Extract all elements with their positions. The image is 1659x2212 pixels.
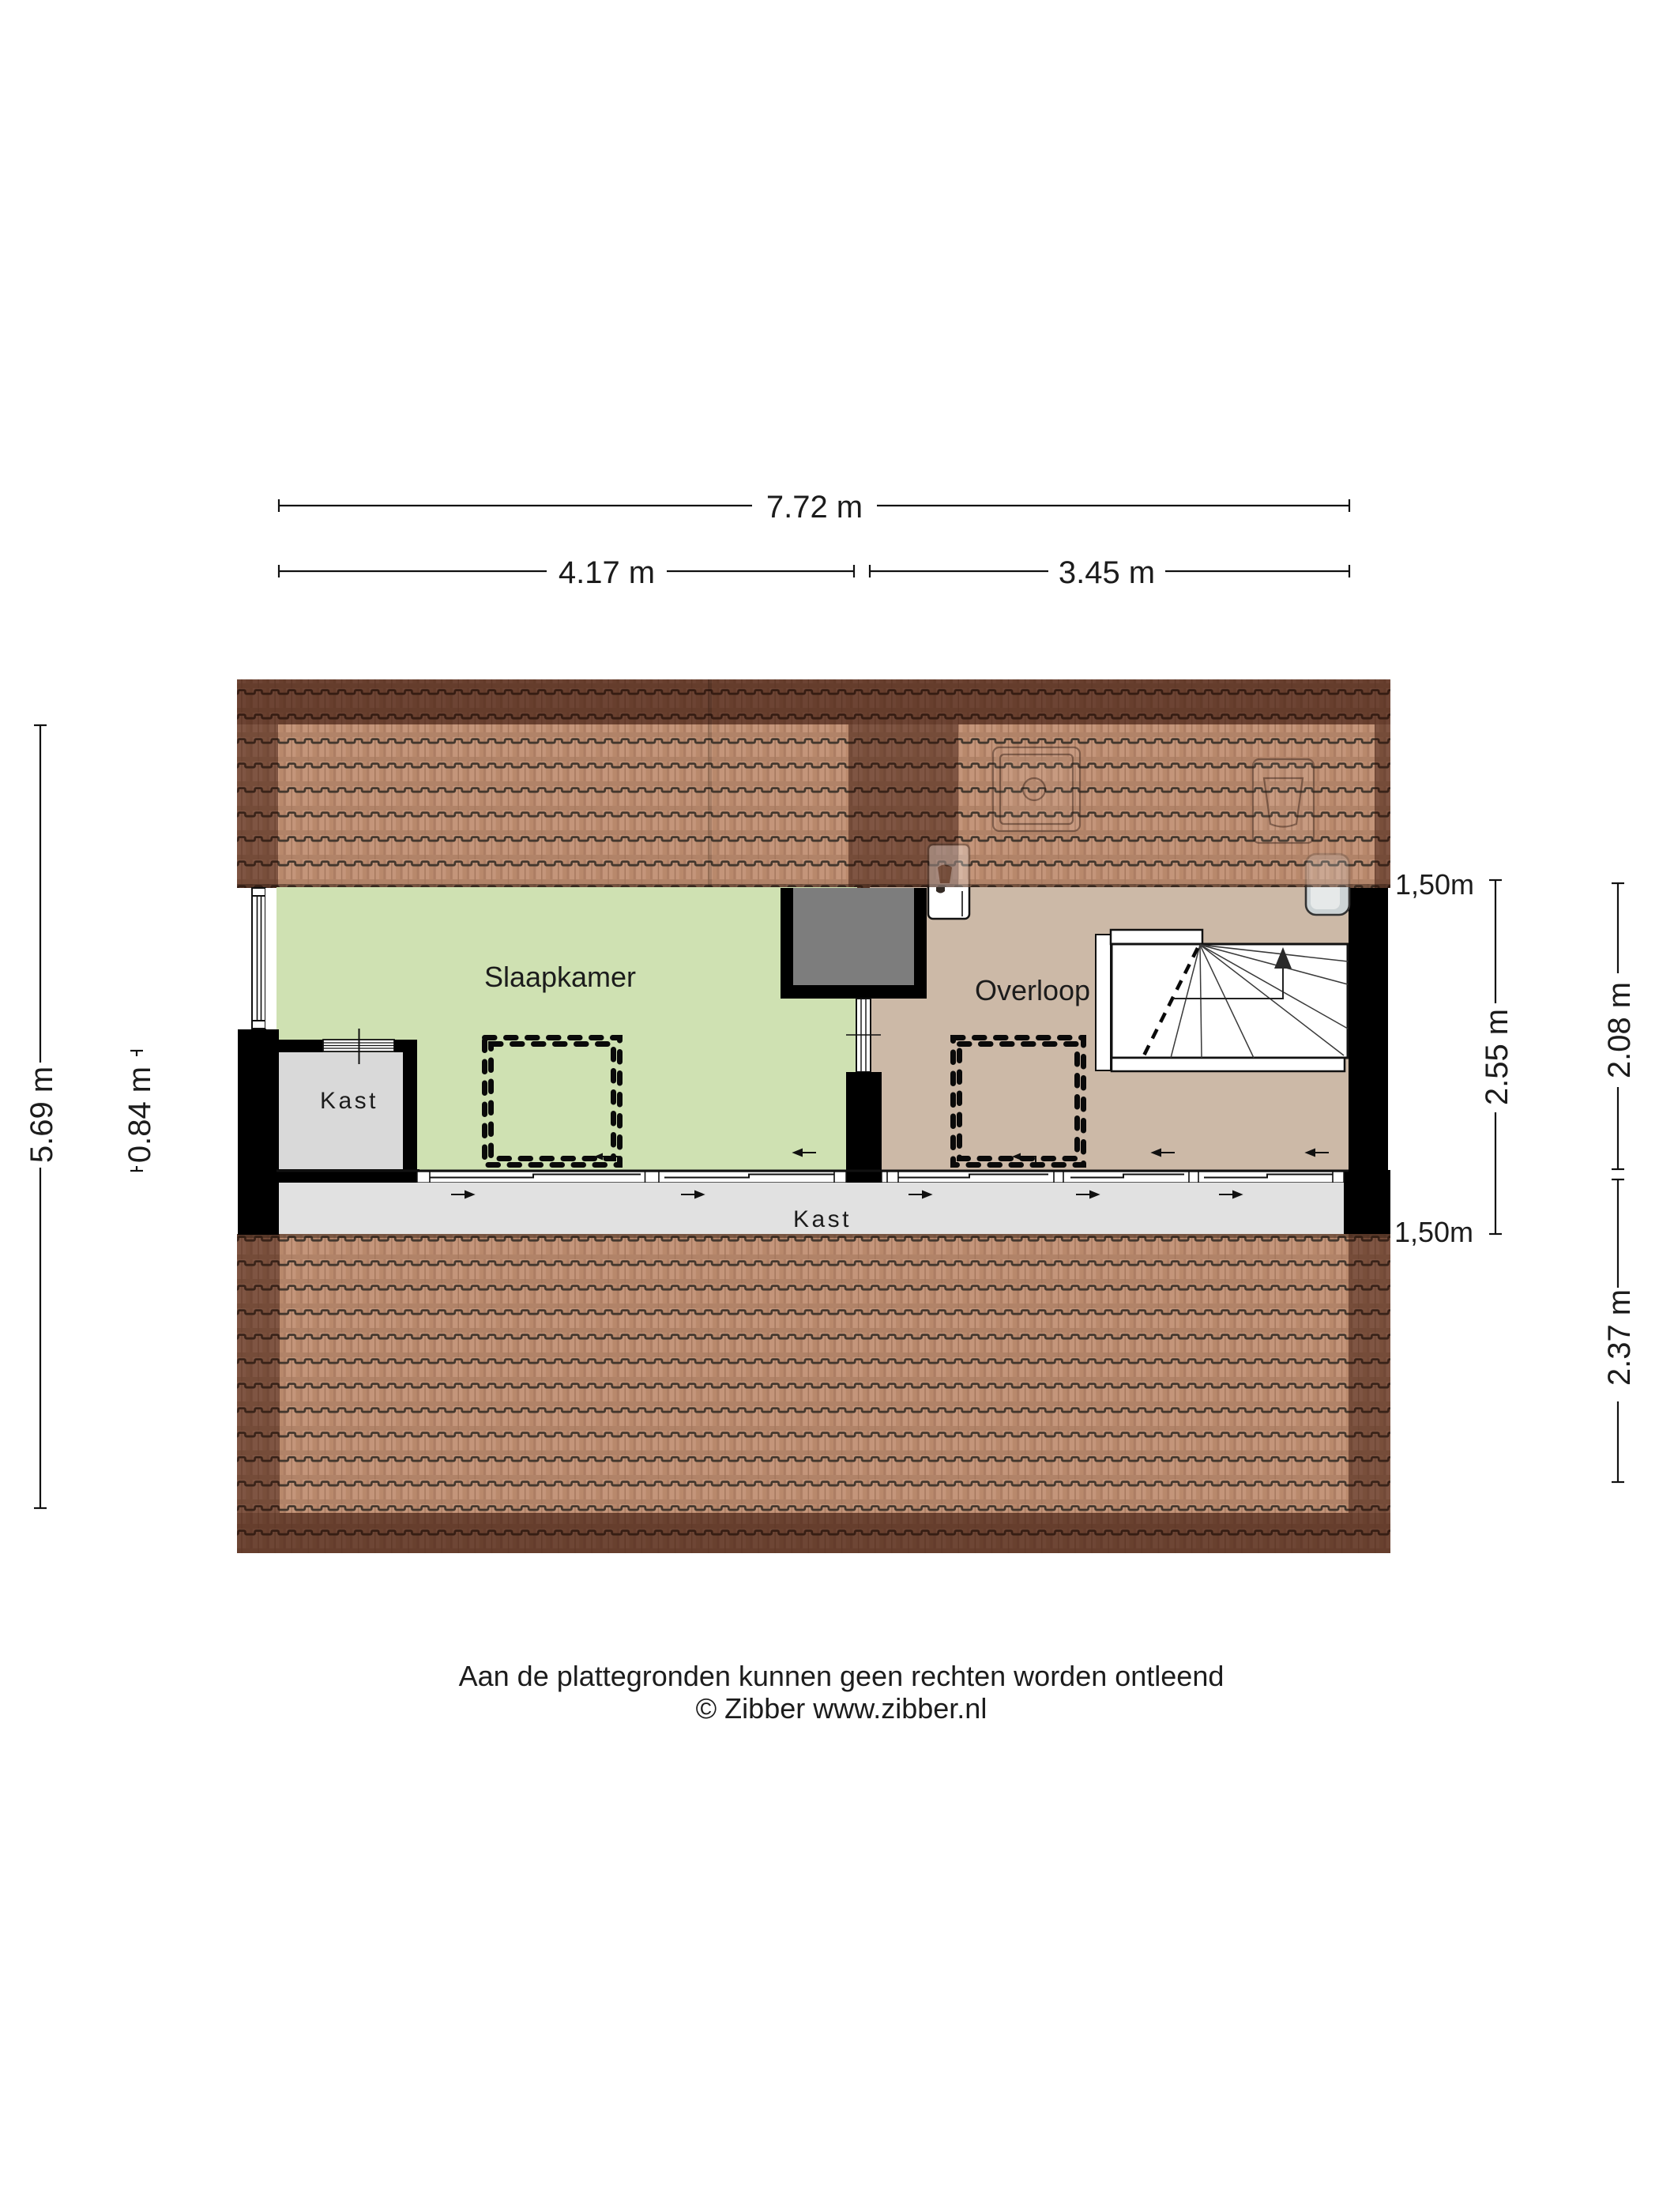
svg-text:© Zibber www.zibber.nl: © Zibber www.zibber.nl	[696, 1692, 987, 1725]
svg-text:7.72 m: 7.72 m	[766, 490, 863, 525]
svg-text:Slaapkamer: Slaapkamer	[484, 961, 636, 993]
svg-text:2.37 m: 2.37 m	[1602, 1289, 1637, 1386]
svg-text:Kast: Kast	[793, 1206, 852, 1232]
svg-text:2.55 m: 2.55 m	[1480, 1009, 1514, 1105]
svg-text:1,50m: 1,50m	[1394, 1216, 1473, 1248]
svg-text:2.08 m: 2.08 m	[1602, 982, 1637, 1078]
svg-text:3.45 m: 3.45 m	[1059, 555, 1155, 590]
svg-text:1,50m: 1,50m	[1395, 868, 1474, 901]
svg-text:4.17 m: 4.17 m	[559, 555, 655, 590]
svg-text:Overloop: Overloop	[975, 974, 1090, 1006]
svg-text:Kast: Kast	[320, 1088, 378, 1114]
svg-text:0.84 m: 0.84 m	[122, 1066, 157, 1163]
svg-text:5.69 m: 5.69 m	[24, 1066, 59, 1163]
svg-text:Aan de plattegronden kunnen ge: Aan de plattegronden kunnen geen rechten…	[459, 1660, 1224, 1692]
